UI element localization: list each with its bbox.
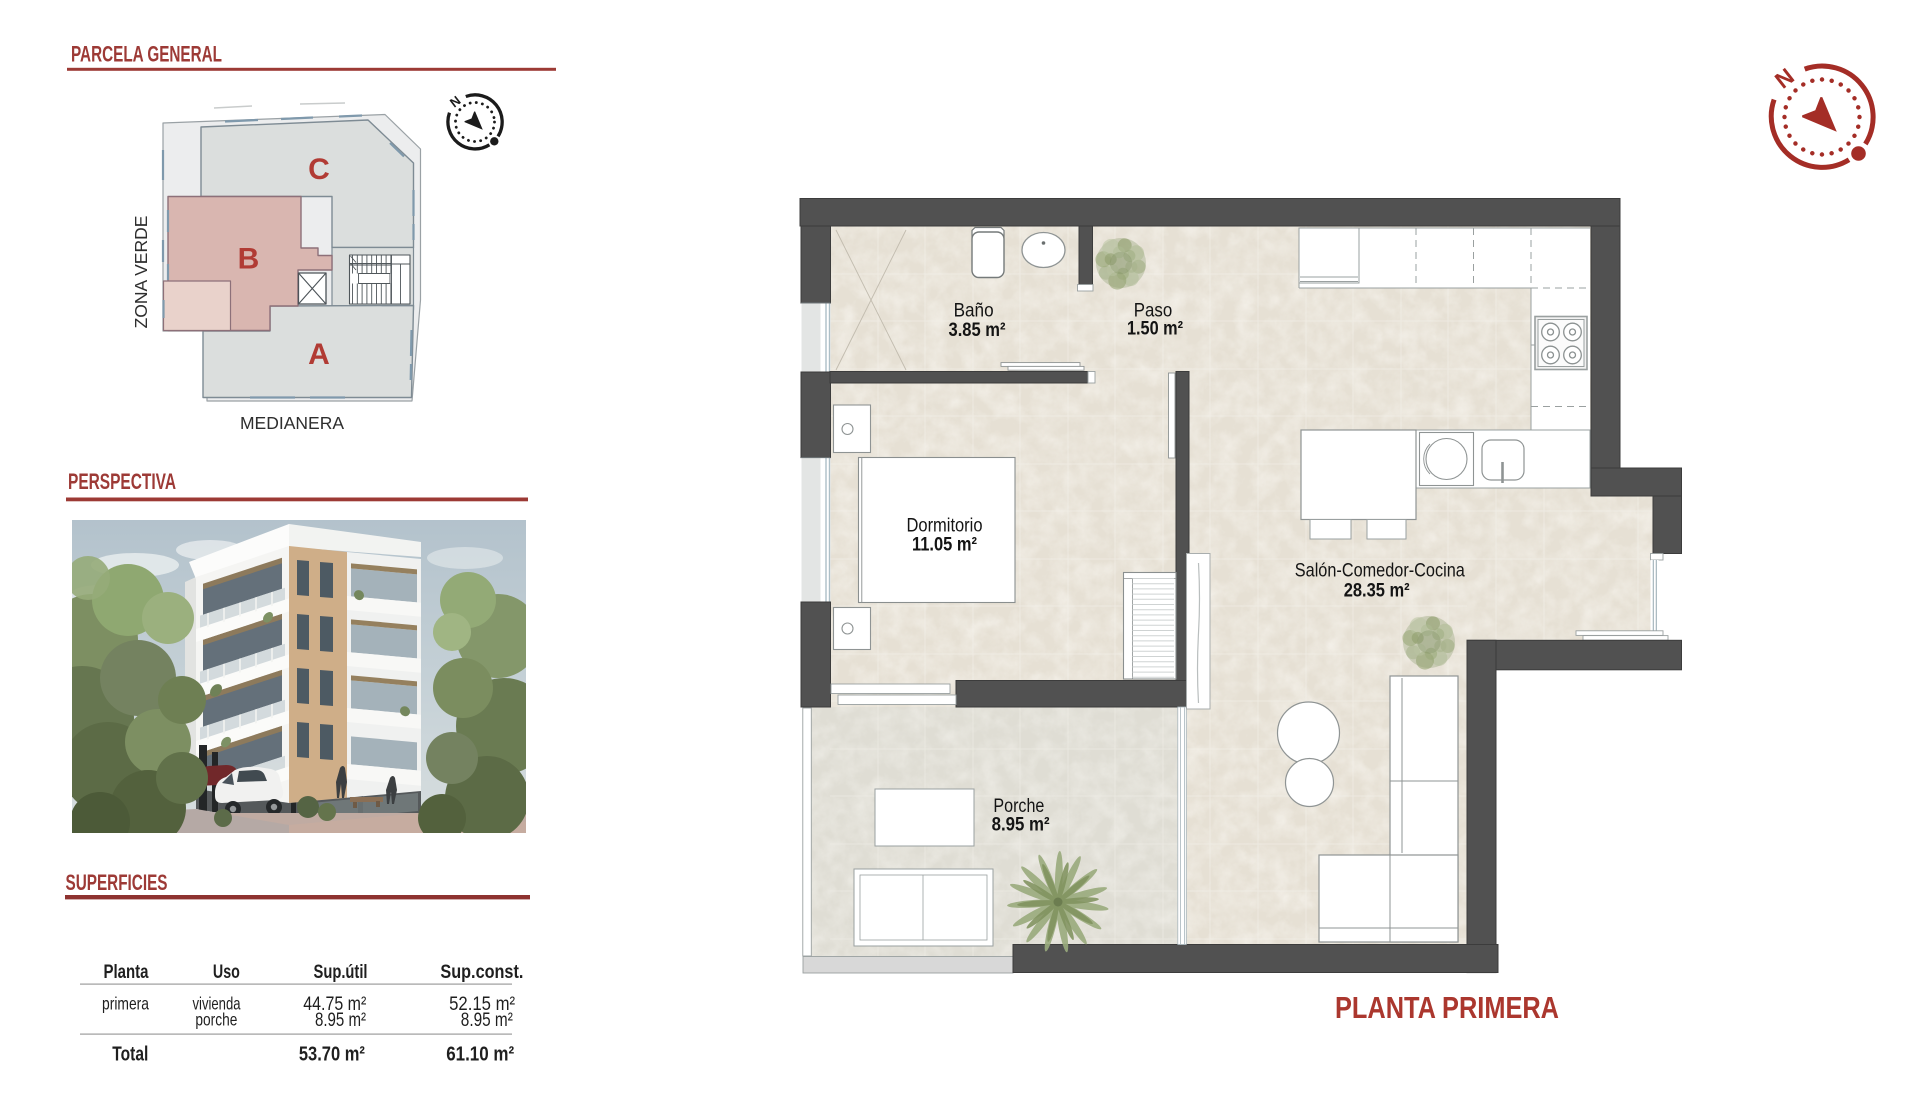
svg-text:PERSPECTIVA: PERSPECTIVA bbox=[68, 469, 176, 494]
svg-text:61.10 m²: 61.10 m² bbox=[446, 1044, 514, 1066]
svg-text:8.95 m²: 8.95 m² bbox=[315, 1009, 366, 1031]
svg-text:ZONA VERDE: ZONA VERDE bbox=[131, 216, 151, 329]
svg-text:primera: primera bbox=[102, 994, 149, 1014]
svg-text:Sup.útil: Sup.útil bbox=[314, 962, 368, 983]
svg-text:PLANTA PRIMERA: PLANTA PRIMERA bbox=[1335, 990, 1559, 1025]
svg-text:B: B bbox=[238, 242, 260, 275]
svg-text:Planta: Planta bbox=[104, 962, 149, 983]
svg-text:porche: porche bbox=[195, 1010, 237, 1030]
svg-text:Salón-Comedor-Cocina: Salón-Comedor-Cocina bbox=[1295, 560, 1465, 582]
svg-text:8.95 m²: 8.95 m² bbox=[992, 813, 1050, 835]
svg-text:1.50 m²: 1.50 m² bbox=[1127, 318, 1183, 340]
svg-text:11.05 m²: 11.05 m² bbox=[912, 534, 977, 556]
svg-text:Sup.const.: Sup.const. bbox=[440, 962, 523, 983]
svg-text:3.85 m²: 3.85 m² bbox=[949, 319, 1006, 341]
svg-text:Total: Total bbox=[112, 1044, 148, 1066]
svg-text:SUPERFICIES: SUPERFICIES bbox=[66, 870, 168, 895]
svg-text:53.70 m²: 53.70 m² bbox=[299, 1044, 365, 1066]
svg-text:C: C bbox=[308, 153, 330, 186]
svg-text:A: A bbox=[308, 338, 330, 371]
svg-text:28.35 m²: 28.35 m² bbox=[1344, 579, 1410, 601]
svg-text:MEDIANERA: MEDIANERA bbox=[240, 413, 344, 433]
svg-text:PARCELA GENERAL: PARCELA GENERAL bbox=[71, 42, 222, 67]
svg-text:Uso: Uso bbox=[213, 962, 240, 983]
svg-text:8.95 m²: 8.95 m² bbox=[461, 1009, 513, 1031]
